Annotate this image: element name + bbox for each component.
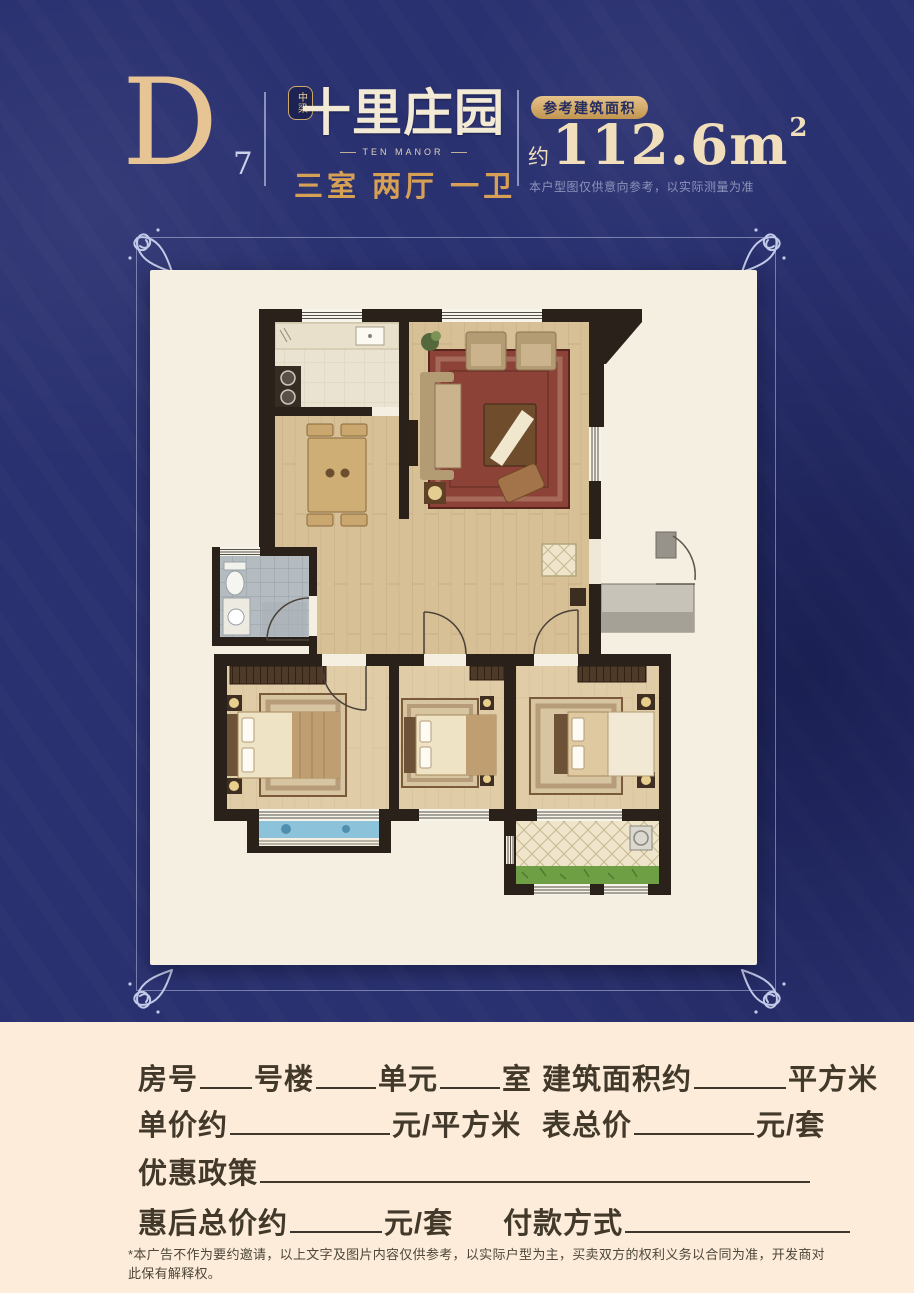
purchase-form: 房号号楼单元室 建筑面积约平方米 单价约元/平方米 表总价元/套 优惠政策 惠后… <box>0 1022 914 1293</box>
brand-logo: 十里庄园 <box>298 84 508 142</box>
form-row-discount: 优惠政策 <box>138 1150 812 1192</box>
area-disclaimer: 本户型图仅供意向参考，以实际测量为准 <box>529 178 754 195</box>
list-price-blank <box>634 1104 754 1135</box>
discount-blank <box>260 1152 810 1183</box>
unit-code: D <box>122 58 218 190</box>
room-no-blank <box>200 1058 252 1089</box>
header-divider <box>264 92 266 186</box>
building-label: 号楼 <box>254 1064 314 1096</box>
discount-label: 优惠政策 <box>138 1158 258 1190</box>
floor-plan-panel <box>150 270 757 965</box>
building-blank <box>316 1058 376 1089</box>
area-blank <box>694 1058 786 1089</box>
unit-code-number: 7 <box>233 146 253 182</box>
area-unit-label: 平方米 <box>788 1064 878 1096</box>
list-price-unit-label: 元/套 <box>756 1110 825 1142</box>
unit-price-unit-label: 元/平方米 <box>392 1110 521 1142</box>
brand-name-en: TEN MANOR <box>303 147 503 157</box>
suite-label: 室 <box>502 1064 532 1096</box>
area-superscript: 2 <box>789 113 807 143</box>
legal-disclaimer: *本广告不作为要约邀请，以上文字及图片内容仅供参考，以实际户型为主，买卖双方的权… <box>128 1244 828 1282</box>
floor-plan-illustration <box>204 302 704 922</box>
form-row-area: 建筑面积约平方米 <box>542 1056 878 1098</box>
area-figure: 约112.6m2 <box>528 112 808 177</box>
form-row-final-price: 惠后总价约元/套付款方式 <box>138 1200 852 1242</box>
unit-price-label: 单价约 <box>138 1110 228 1142</box>
payment-label: 付款方式 <box>503 1208 623 1240</box>
layout-summary: 三室 两厅 一卫 <box>294 163 516 205</box>
list-price-label: 表总价 <box>542 1110 632 1142</box>
area-label: 建筑面积约 <box>542 1064 692 1096</box>
area-prefix: 约 <box>528 146 549 169</box>
room-no-label: 房号 <box>138 1064 198 1096</box>
form-row-list-price: 表总价元/套 <box>542 1102 825 1144</box>
final-price-unit-label: 元/套 <box>384 1208 453 1240</box>
unit-price-blank <box>230 1104 390 1135</box>
poster: D 7 中梁 十里庄园 TEN MANOR 三室 两厅 一卫 参考建筑面积 约1… <box>0 0 914 1293</box>
unit-blank <box>440 1058 500 1089</box>
form-row-unit-price: 单价约元/平方米 <box>138 1102 521 1144</box>
header-divider <box>517 90 519 186</box>
form-row-room: 房号号楼单元室 <box>138 1056 532 1098</box>
unit-label: 单元 <box>378 1064 438 1096</box>
ornament-line <box>451 152 467 153</box>
payment-blank <box>625 1202 850 1233</box>
poster-blue-background: D 7 中梁 十里庄园 TEN MANOR 三室 两厅 一卫 参考建筑面积 约1… <box>0 0 914 1022</box>
dining-set <box>307 424 367 526</box>
final-price-label: 惠后总价约 <box>138 1208 288 1240</box>
area-value: 112.6m <box>552 112 788 177</box>
final-price-blank <box>290 1202 382 1233</box>
balcony-left <box>259 821 379 847</box>
ornament-line <box>340 152 356 153</box>
entry-landing <box>601 532 695 632</box>
